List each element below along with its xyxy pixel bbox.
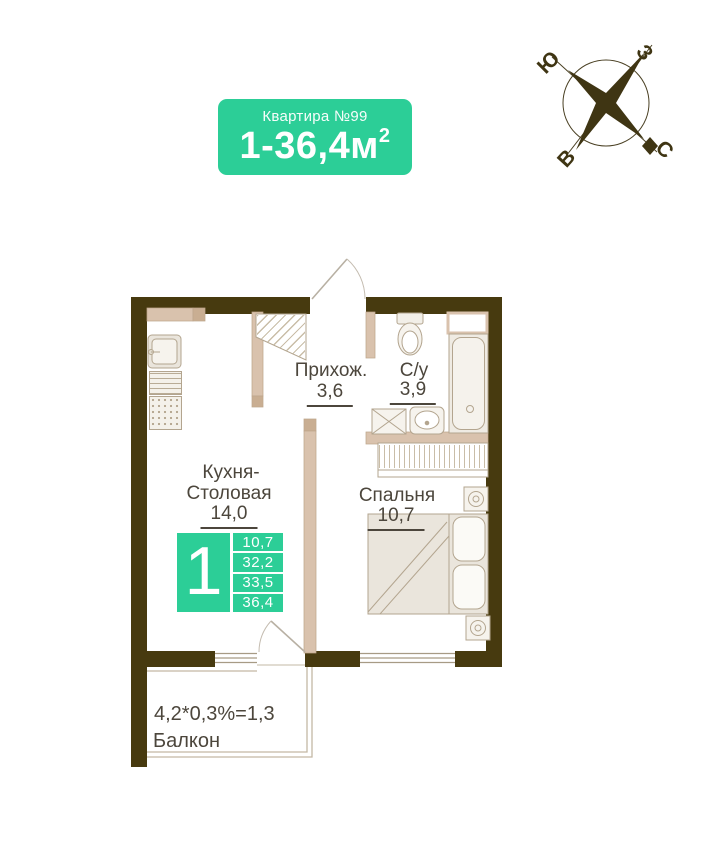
rooms-count: 1 xyxy=(177,533,230,612)
area-value-living: 10,7 xyxy=(233,533,283,551)
nightstand-bottom xyxy=(466,616,490,640)
floorplan-page: Ю З В С Квартира №99 1-36,4м2 Прихож. 3,… xyxy=(0,0,722,854)
bedroom-wardrobe-hatch xyxy=(379,445,487,468)
areas-info-box: 1 10,7 32,2 33,5 36,4 xyxy=(177,533,283,612)
kitchen-area: 14,0 xyxy=(201,503,258,529)
bathtub xyxy=(449,334,488,433)
area-value-general: 33,5 xyxy=(233,574,283,592)
kitchen-counter xyxy=(149,371,182,395)
hallway-label: Прихож. xyxy=(295,360,367,382)
toilet xyxy=(397,313,423,355)
washing-machine xyxy=(372,409,406,434)
stove xyxy=(149,396,182,430)
compass-star xyxy=(568,52,645,150)
bedroom-area: 10,7 xyxy=(368,505,425,531)
area-value-total: 36,4 xyxy=(233,594,283,612)
kitchen-label-line1: Кухня- xyxy=(202,462,259,484)
hallway-area: 3,6 xyxy=(307,381,353,407)
bathroom-sink xyxy=(410,407,444,434)
apartment-badge: Квартира №99 1-36,4м2 xyxy=(218,99,412,175)
kitchen-label-line2: Столовая xyxy=(187,483,272,505)
vent-shaft xyxy=(448,313,487,333)
balcony-door xyxy=(257,621,305,665)
balcony-label: Балкон xyxy=(153,730,220,753)
bathroom-area: 3,9 xyxy=(390,379,436,405)
bedroom-label: Спальня xyxy=(359,485,435,507)
nightstand-top xyxy=(464,487,488,511)
apartment-number: Квартира №99 xyxy=(218,108,412,125)
entrance-door xyxy=(312,259,365,299)
kitchen-sink xyxy=(148,335,181,368)
area-value-partial: 32,2 xyxy=(233,553,283,571)
apartment-area: 1-36,4м2 xyxy=(218,125,412,167)
balcony-formula: 4,2*0,3%=1,3 xyxy=(154,703,275,726)
